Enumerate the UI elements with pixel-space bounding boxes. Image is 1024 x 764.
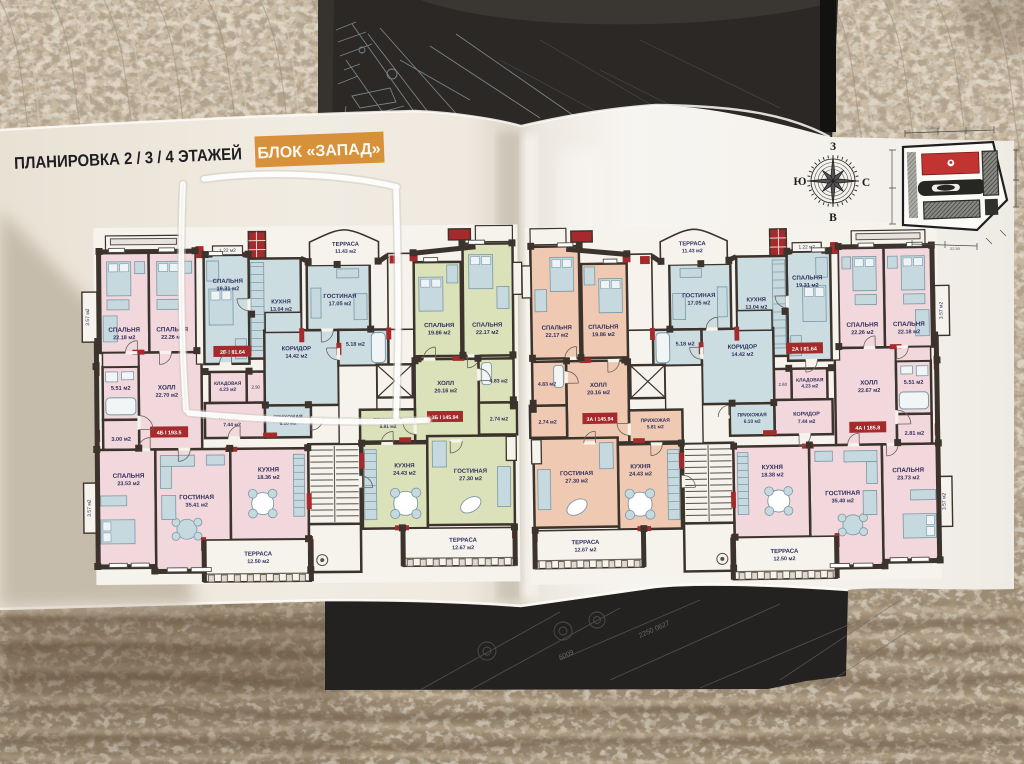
- svg-text:7.44 м2: 7.44 м2: [798, 419, 816, 425]
- svg-text:ТЕРРАСА: ТЕРРАСА: [332, 242, 360, 248]
- svg-text:ХОЛЛ: ХОЛЛ: [860, 379, 878, 386]
- svg-text:4Б I 193.5: 4Б I 193.5: [157, 430, 182, 436]
- svg-text:18.38 м2: 18.38 м2: [761, 472, 784, 478]
- svg-text:СПАЛЬНЯ: СПАЛЬНЯ: [792, 275, 822, 281]
- svg-text:5.51 м2: 5.51 м2: [904, 380, 924, 386]
- svg-text:ГОСТИНАЯ: ГОСТИНАЯ: [682, 293, 715, 300]
- svg-text:СПАЛЬНЯ: СПАЛЬНЯ: [846, 321, 878, 329]
- svg-text:5.18 м2: 5.18 м2: [676, 341, 695, 347]
- svg-text:4.23 м2: 4.23 м2: [801, 383, 818, 389]
- svg-text:12.50 м2: 12.50 м2: [247, 559, 269, 565]
- svg-text:19.31 м2: 19.31 м2: [796, 283, 819, 289]
- svg-text:22.18 м2: 22.18 м2: [113, 335, 135, 341]
- svg-text:ТЕРРАСА: ТЕРРАСА: [770, 549, 799, 555]
- svg-text:4.83 м2: 4.83 м2: [538, 381, 556, 387]
- svg-text:КЛАДОВАЯ: КЛАДОВАЯ: [796, 377, 824, 383]
- svg-text:2.74 м2: 2.74 м2: [538, 419, 556, 425]
- svg-text:22.70 м2: 22.70 м2: [156, 393, 178, 399]
- svg-text:СПАЛЬНЯ: СПАЛЬНЯ: [472, 322, 502, 328]
- svg-text:11.43 м2: 11.43 м2: [335, 249, 356, 255]
- svg-text:2.90: 2.90: [251, 385, 260, 390]
- svg-text:22.17 м2: 22.17 м2: [545, 333, 568, 339]
- svg-text:24.43 м2: 24.43 м2: [629, 471, 652, 477]
- svg-text:ГОСТИНАЯ: ГОСТИНАЯ: [825, 490, 860, 498]
- svg-text:22.50: 22.50: [950, 246, 961, 251]
- svg-text:27.30 м2: 27.30 м2: [565, 478, 588, 484]
- svg-text:4.23 м2: 4.23 м2: [219, 387, 236, 393]
- svg-text:ГОСТИНАЯ: ГОСТИНАЯ: [560, 471, 593, 478]
- svg-text:3.00 м2: 3.00 м2: [111, 437, 131, 443]
- svg-text:7.44 м2: 7.44 м2: [223, 422, 241, 428]
- svg-text:СПАЛЬНЯ: СПАЛЬНЯ: [588, 324, 618, 330]
- svg-text:12.50 м2: 12.50 м2: [773, 556, 795, 562]
- svg-text:17.05 м2: 17.05 м2: [329, 301, 352, 307]
- svg-text:35.40 м2: 35.40 м2: [832, 498, 855, 504]
- svg-text:СПАЛЬНЯ: СПАЛЬНЯ: [893, 321, 925, 329]
- svg-text:17.05 м2: 17.05 м2: [687, 300, 710, 306]
- svg-text:З: З: [830, 141, 836, 153]
- svg-text:5.18 м2: 5.18 м2: [346, 342, 365, 348]
- svg-text:3.57 м2: 3.57 м2: [941, 492, 947, 510]
- svg-text:ПРИХОЖАЯ: ПРИХОЖАЯ: [641, 418, 671, 424]
- svg-text:5.81 м2: 5.81 м2: [647, 424, 664, 430]
- svg-text:22.18 м2: 22.18 м2: [898, 329, 921, 335]
- svg-text:2А I 81.64: 2А I 81.64: [792, 346, 817, 352]
- svg-text:5.51 м2: 5.51 м2: [111, 386, 131, 392]
- svg-text:СПАЛЬНЯ: СПАЛЬНЯ: [424, 323, 454, 329]
- svg-text:ХОЛЛ: ХОЛЛ: [590, 383, 607, 389]
- svg-text:КЛАДОВАЯ: КЛАДОВАЯ: [214, 381, 242, 387]
- svg-text:ТЕРРАСА: ТЕРРАСА: [244, 551, 273, 557]
- svg-text:4А I 185.8: 4А I 185.8: [855, 425, 880, 431]
- svg-text:19.31 м2: 19.31 м2: [216, 286, 239, 292]
- svg-text:22.67 м2: 22.67 м2: [858, 388, 881, 394]
- svg-text:2.81 м2: 2.81 м2: [905, 431, 925, 437]
- svg-text:3.57 м2: 3.57 м2: [938, 301, 944, 319]
- svg-text:ТЕРРАСА: ТЕРРАСА: [571, 540, 600, 546]
- svg-text:14.42 м2: 14.42 м2: [285, 354, 307, 360]
- svg-text:19.86 м2: 19.86 м2: [592, 332, 615, 338]
- svg-text:КУХНЯ: КУХНЯ: [258, 466, 280, 473]
- svg-text:23.53 м2: 23.53 м2: [117, 481, 139, 487]
- svg-text:2.60: 2.60: [778, 382, 787, 387]
- svg-text:КУХНЯ: КУХНЯ: [630, 464, 650, 470]
- svg-text:СПАЛЬНЯ: СПАЛЬНЯ: [113, 473, 145, 480]
- svg-text:В: В: [829, 212, 837, 224]
- svg-text:ГОСТИНАЯ: ГОСТИНАЯ: [454, 469, 487, 475]
- svg-text:ГОСТИНАЯ: ГОСТИНАЯ: [179, 494, 214, 501]
- svg-text:16.00: 16.00: [930, 125, 941, 130]
- svg-text:КУХНЯ: КУХНЯ: [762, 464, 784, 471]
- svg-text:23.73 м2: 23.73 м2: [897, 475, 920, 481]
- svg-text:3.57 м2: 3.57 м2: [87, 499, 93, 517]
- svg-text:КОРИДОР: КОРИДОР: [793, 411, 820, 417]
- svg-text:ТЕРРАСА: ТЕРРАСА: [449, 538, 478, 544]
- svg-text:2.74 м2: 2.74 м2: [490, 416, 508, 422]
- svg-text:12.67 м2: 12.67 м2: [574, 547, 596, 553]
- svg-text:22.26 м2: 22.26 м2: [851, 330, 874, 336]
- svg-text:20.16 м2: 20.16 м2: [587, 390, 610, 396]
- svg-text:20.16 м2: 20.16 м2: [434, 388, 457, 394]
- svg-text:СПАЛЬНЯ: СПАЛЬНЯ: [892, 467, 924, 475]
- svg-text:3А I 145.94: 3А I 145.94: [587, 417, 614, 423]
- svg-text:ГОСТИНАЯ: ГОСТИНАЯ: [323, 294, 356, 300]
- svg-text:С: С: [862, 177, 870, 189]
- svg-text:СПАЛЬНЯ: СПАЛЬНЯ: [542, 325, 572, 331]
- svg-text:СПАЛЬНЯ: СПАЛЬНЯ: [213, 279, 243, 285]
- svg-text:6.10 м2: 6.10 м2: [744, 419, 761, 425]
- svg-text:ХОЛЛ: ХОЛЛ: [158, 384, 176, 391]
- svg-text:22.17 м2: 22.17 м2: [476, 330, 499, 336]
- svg-text:КОРИДОР: КОРИДОР: [282, 346, 312, 352]
- svg-text:35.41 м2: 35.41 м2: [186, 502, 208, 508]
- svg-text:3.57 м2: 3.57 м2: [85, 308, 91, 326]
- svg-text:Ю: Ю: [794, 176, 807, 188]
- svg-text:КОРИДОР: КОРИДОР: [728, 344, 758, 350]
- svg-text:27.30 м2: 27.30 м2: [459, 476, 482, 482]
- svg-text:18.36 м2: 18.36 м2: [257, 475, 279, 481]
- svg-text:4.83 м2: 4.83 м2: [490, 378, 508, 384]
- svg-text:СПАЛЬНЯ: СПАЛЬНЯ: [108, 327, 140, 334]
- svg-text:11.43 м2: 11.43 м2: [682, 248, 703, 254]
- svg-text:КУХНЯ: КУХНЯ: [271, 299, 291, 305]
- svg-text:ХОЛЛ: ХОЛЛ: [437, 381, 454, 387]
- svg-text:ПРИХОЖАЯ: ПРИХОЖАЯ: [737, 412, 767, 418]
- svg-text:КУХНЯ: КУХНЯ: [746, 297, 766, 303]
- svg-text:24.43 м2: 24.43 м2: [393, 471, 416, 477]
- svg-text:ТЕРРАСА: ТЕРРАСА: [679, 241, 707, 247]
- svg-text:19.86 м2: 19.86 м2: [428, 330, 451, 336]
- svg-text:КУХНЯ: КУХНЯ: [394, 463, 414, 469]
- svg-text:14.42 м2: 14.42 м2: [731, 352, 753, 358]
- svg-text:12.67 м2: 12.67 м2: [452, 545, 474, 551]
- svg-text:3Б I 145.94: 3Б I 145.94: [432, 415, 459, 421]
